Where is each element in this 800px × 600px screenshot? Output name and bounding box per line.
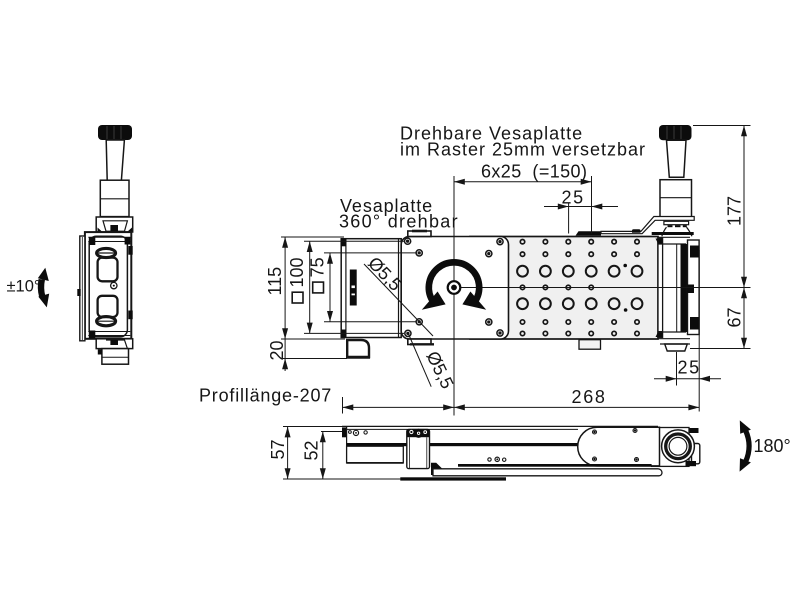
svg-text:67: 67 bbox=[725, 307, 745, 327]
svg-text:75: 75 bbox=[308, 257, 328, 277]
svg-text:25: 25 bbox=[562, 188, 585, 208]
svg-text:115: 115 bbox=[265, 267, 285, 296]
svg-text:268: 268 bbox=[572, 387, 607, 407]
svg-text:100: 100 bbox=[287, 257, 307, 287]
svg-text:20: 20 bbox=[267, 340, 287, 360]
svg-text:Profillänge-207: Profillänge-207 bbox=[199, 386, 332, 406]
svg-text:177: 177 bbox=[725, 196, 745, 226]
svg-text:180°: 180° bbox=[754, 436, 791, 456]
svg-text:52: 52 bbox=[302, 440, 322, 460]
svg-text:im Raster 25mm versetzbar: im Raster 25mm versetzbar bbox=[400, 140, 646, 160]
svg-text:6x25 (=150): 6x25 (=150) bbox=[481, 162, 587, 182]
svg-text:360° drehbar: 360° drehbar bbox=[339, 212, 459, 232]
svg-text:25: 25 bbox=[678, 358, 701, 378]
svg-text:±10°: ±10° bbox=[7, 278, 41, 296]
svg-text:57: 57 bbox=[268, 439, 288, 459]
